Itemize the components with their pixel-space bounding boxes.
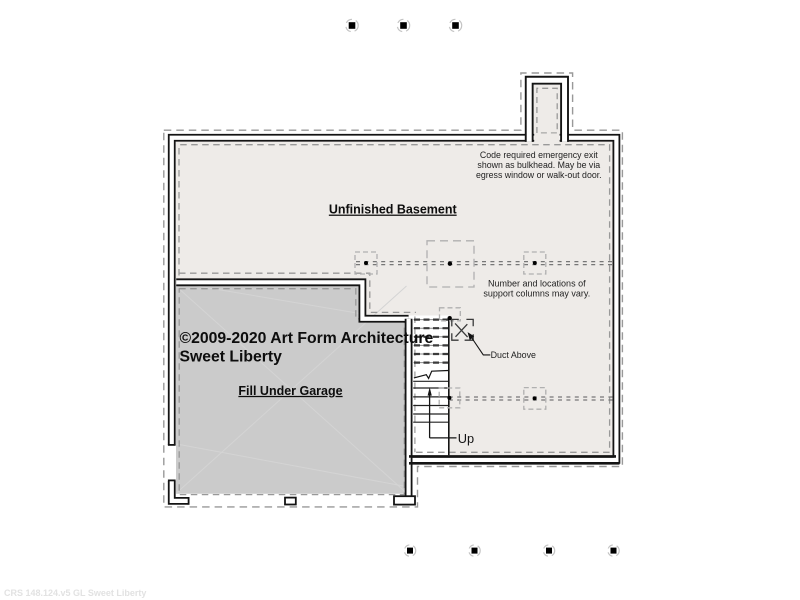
svg-text:Number and locations of: Number and locations of bbox=[488, 279, 586, 289]
svg-text:Code required emergency exit: Code required emergency exit bbox=[480, 150, 598, 160]
svg-text:shown as bulkhead. May be via: shown as bulkhead. May be via bbox=[477, 160, 600, 170]
svg-text:egress window or walk-out door: egress window or walk-out door. bbox=[476, 170, 602, 180]
svg-text:Duct Above: Duct Above bbox=[491, 350, 536, 360]
svg-text:Unfinished Basement: Unfinished Basement bbox=[329, 203, 458, 217]
svg-text:Sweet Liberty: Sweet Liberty bbox=[180, 349, 283, 366]
svg-text:Up: Up bbox=[458, 431, 474, 446]
svg-text:©2009-2020 Art Form Architectu: ©2009-2020 Art Form Architecture bbox=[180, 330, 434, 347]
svg-text:support columns may vary.: support columns may vary. bbox=[483, 289, 590, 299]
svg-text:Fill Under Garage: Fill Under Garage bbox=[238, 384, 342, 398]
svg-text:CRS 148.124.v5 GL Sweet Libert: CRS 148.124.v5 GL Sweet Liberty bbox=[4, 588, 146, 598]
